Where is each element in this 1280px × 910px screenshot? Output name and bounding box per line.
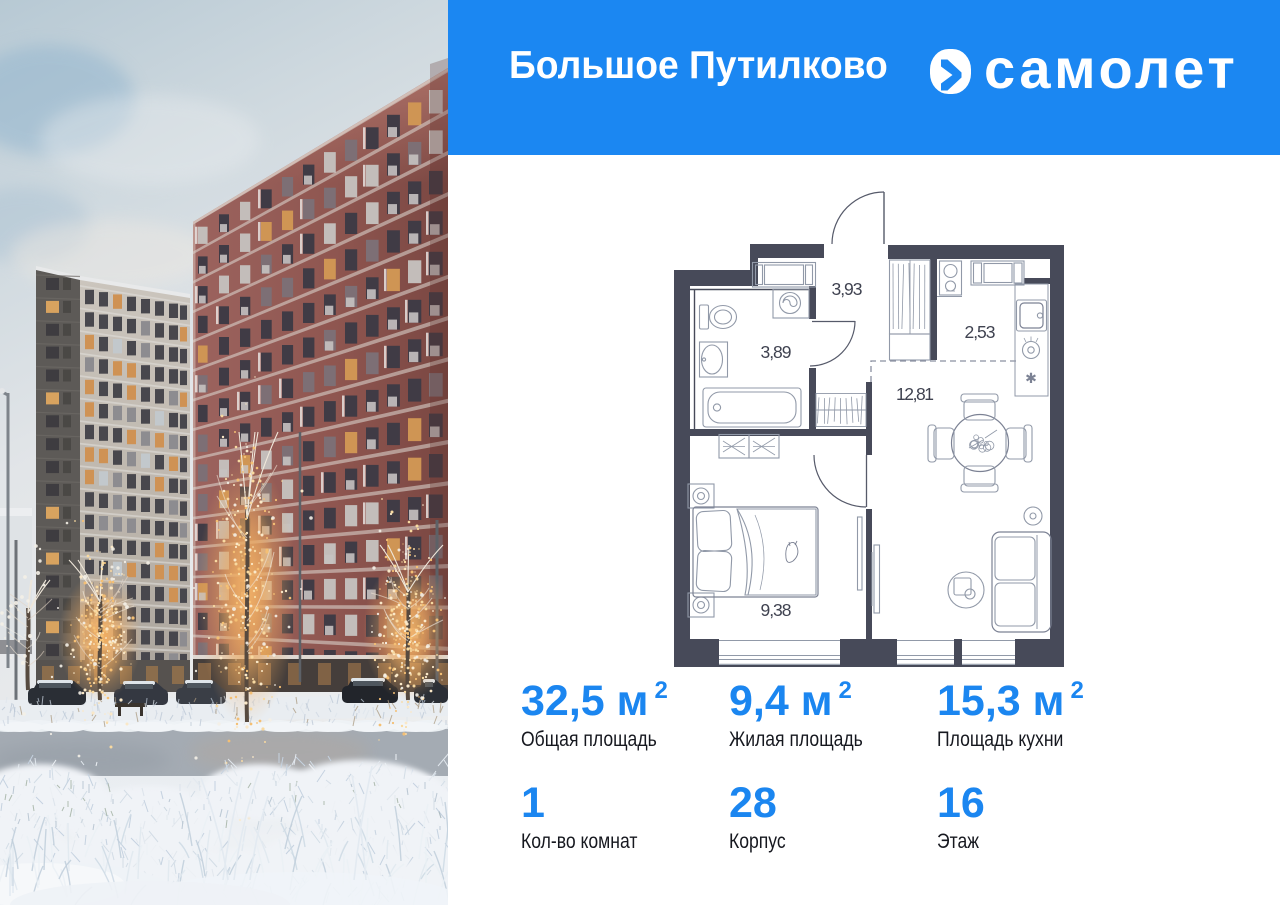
svg-text:✱: ✱ xyxy=(1025,370,1037,386)
svg-text:2,53: 2,53 xyxy=(965,322,996,342)
svg-text:3,89: 3,89 xyxy=(761,342,792,362)
svg-text:12,81: 12,81 xyxy=(896,384,934,404)
svg-text:3,93: 3,93 xyxy=(832,279,863,299)
svg-text:9,38: 9,38 xyxy=(761,600,792,620)
